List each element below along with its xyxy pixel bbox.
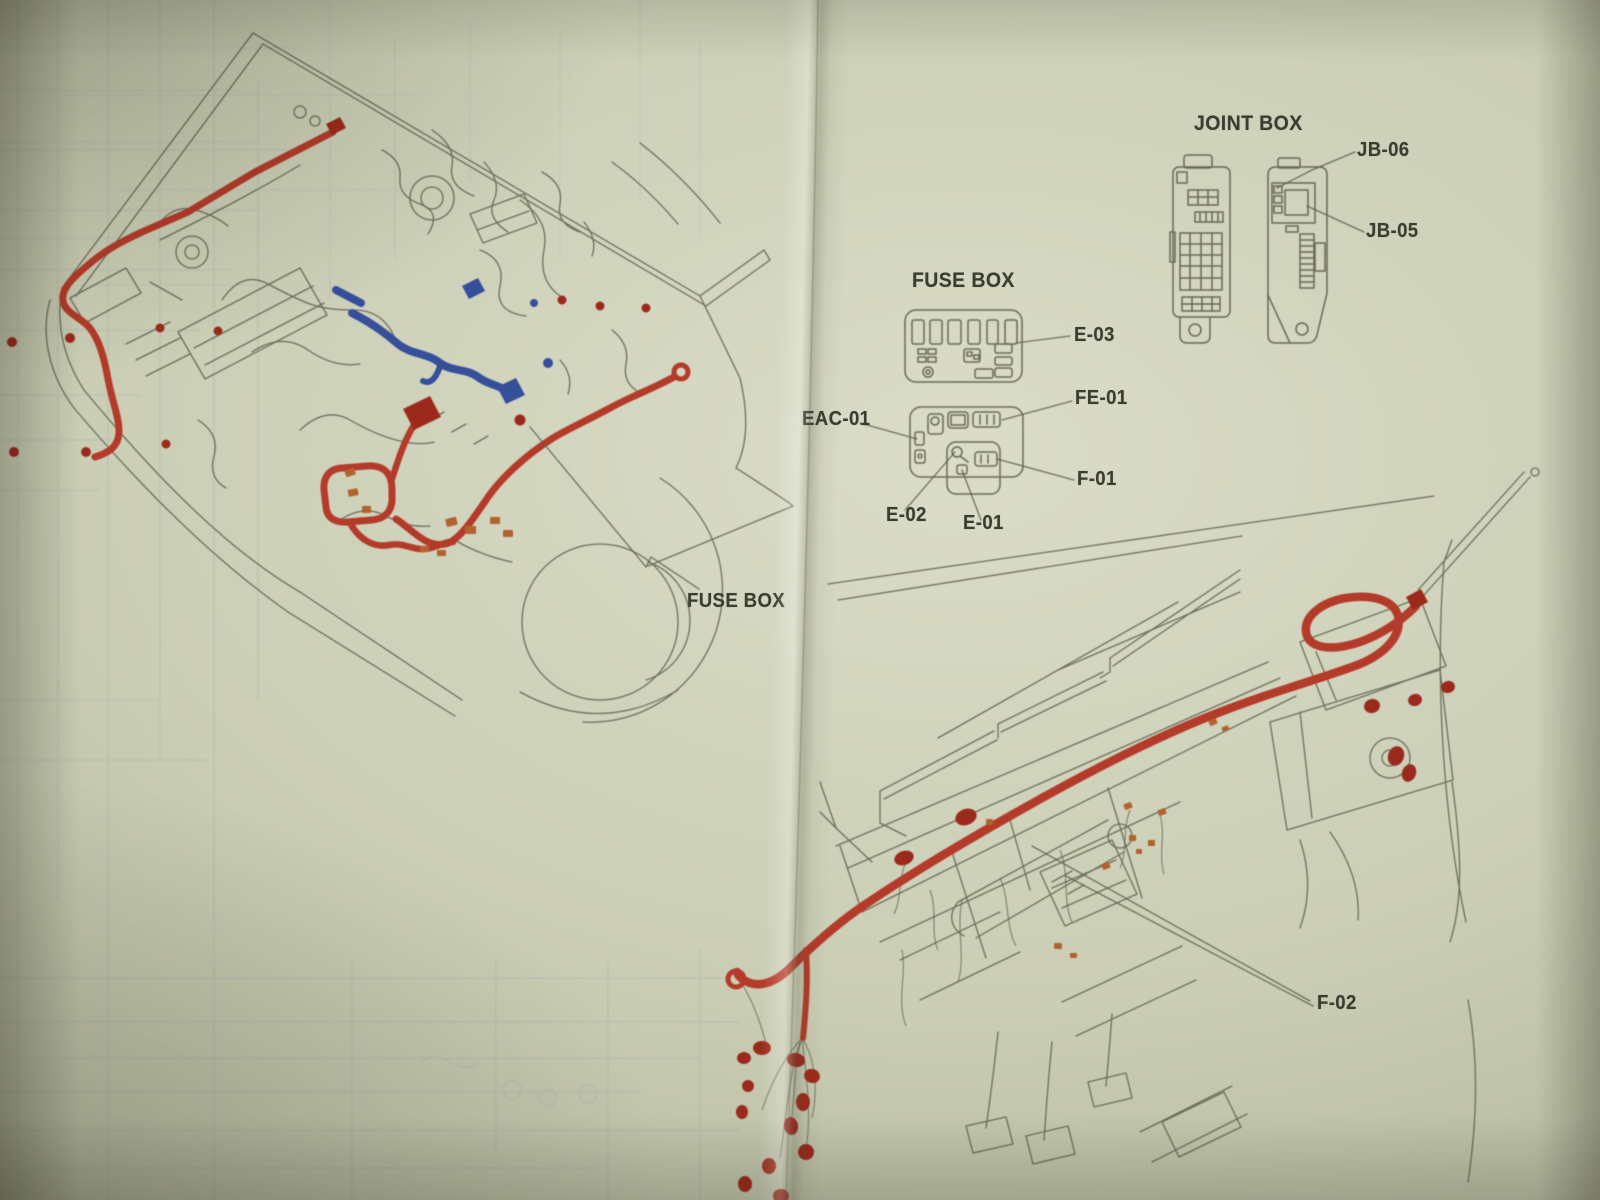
dashboard-illustration — [728, 468, 1539, 1200]
jb06-callout-label: JB-06 — [1357, 140, 1410, 160]
joint-box-detail-illustration — [1170, 155, 1327, 343]
jb05-callout-label: JB-05 — [1366, 221, 1419, 241]
fuse-box-detail-illustration — [905, 310, 1023, 494]
engine-bay-illustration — [7, 33, 793, 722]
engine-fuse-box-callout-label: FUSE BOX — [687, 591, 785, 611]
manual-page-photo: JOINT BOX JB-06 JB-05 FUSE BOX E-03 EAC-… — [0, 0, 1600, 1200]
engine-harness-blue — [336, 278, 553, 404]
engine-harness-red — [7, 117, 688, 556]
fe01-callout-label: FE-01 — [1075, 388, 1128, 408]
wiring-diagram-artwork — [0, 0, 1600, 1200]
joint-box-title: JOINT BOX — [1194, 113, 1303, 134]
f01-callout-label: F-01 — [1077, 469, 1117, 489]
show-through-print — [0, 0, 740, 1200]
fuse-box-title: FUSE BOX — [912, 270, 1015, 291]
e03-callout-label: E-03 — [1074, 325, 1115, 345]
e02-callout-label: E-02 — [886, 505, 927, 525]
e01-callout-label: E-01 — [963, 513, 1004, 533]
f02-callout-label: F-02 — [1317, 993, 1357, 1013]
eac01-callout-label: EAC-01 — [802, 409, 870, 429]
